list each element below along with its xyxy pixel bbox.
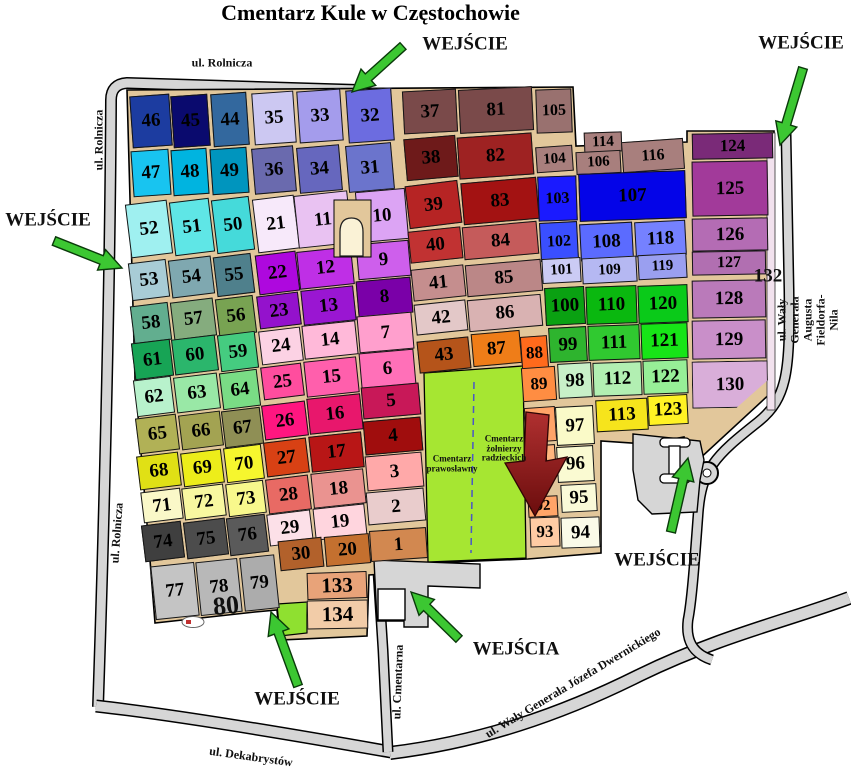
entrance-arrow-icon (52, 237, 122, 270)
page-title: Cmentarz Kule w Częstochowie (0, 0, 796, 26)
entrance-arrow-icon (776, 67, 808, 145)
entrance-arrow-icon (667, 458, 694, 533)
map-top-layer (0, 0, 851, 775)
entrance-arrows (52, 43, 807, 688)
red-arrow-icon (505, 412, 567, 516)
entrance-arrow-icon (268, 612, 302, 688)
entrance-arrow-icon (411, 592, 462, 642)
cemetery-map: Cmentarz Kule w Częstochowie (0, 0, 851, 775)
chapel-icon (334, 200, 371, 257)
entrance-arrow-icon (352, 43, 406, 92)
